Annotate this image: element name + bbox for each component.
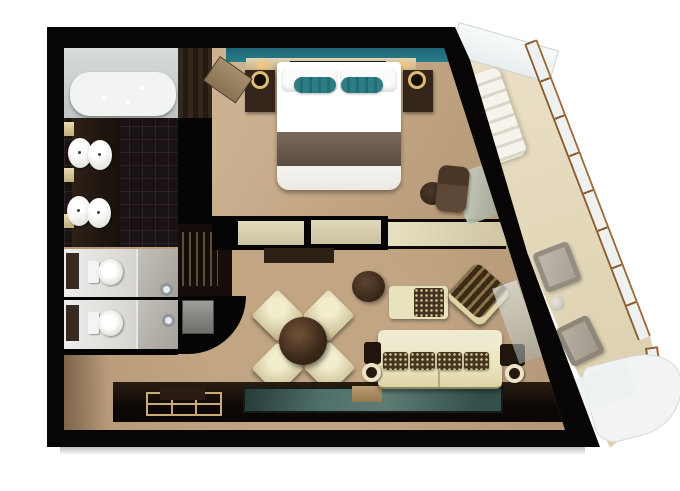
side-shelf <box>352 386 382 402</box>
bed-runner <box>277 132 401 166</box>
sofa-cushion <box>437 352 462 370</box>
table-lamp <box>251 71 269 89</box>
shower-glass <box>136 300 138 349</box>
table-lamp <box>408 71 426 89</box>
floorplan-render <box>0 0 680 491</box>
end-table <box>364 342 381 364</box>
wc-mirror <box>66 305 79 341</box>
shower-head <box>160 283 173 296</box>
mini-fridge <box>182 300 214 334</box>
wall-divider <box>64 297 178 300</box>
desk-chair <box>435 165 471 214</box>
drop-shadow <box>60 447 585 455</box>
credenza <box>388 219 506 249</box>
tray-box <box>160 387 205 400</box>
tv-console <box>264 248 334 263</box>
dining-table <box>279 317 327 365</box>
sliding-panel <box>238 221 304 245</box>
bathtub-water <box>75 77 171 111</box>
shower-head <box>162 314 175 327</box>
ottoman <box>352 271 385 302</box>
accent-pillow <box>341 77 383 93</box>
wc-mirror <box>66 253 79 289</box>
toilet-bowl <box>98 310 123 336</box>
toilet-bowl <box>98 259 123 285</box>
floor-lamp <box>505 364 524 383</box>
wall-divider <box>64 349 178 355</box>
sliding-panel <box>311 220 381 244</box>
sofa-cushion <box>410 352 435 370</box>
sofa-cushion <box>464 352 489 370</box>
floor-lamp <box>362 363 381 382</box>
sofa-cushion <box>383 352 408 370</box>
accent-pillow <box>294 77 336 93</box>
vanity-shelf <box>64 122 74 136</box>
armchair-cushion <box>414 288 444 317</box>
shower-glass <box>136 249 138 297</box>
vanity-shelf <box>64 168 74 182</box>
sink <box>87 198 111 228</box>
balcony-side-table <box>550 296 565 311</box>
sink <box>88 140 112 170</box>
interior-wall <box>178 118 212 224</box>
sofa-seat <box>380 370 500 387</box>
